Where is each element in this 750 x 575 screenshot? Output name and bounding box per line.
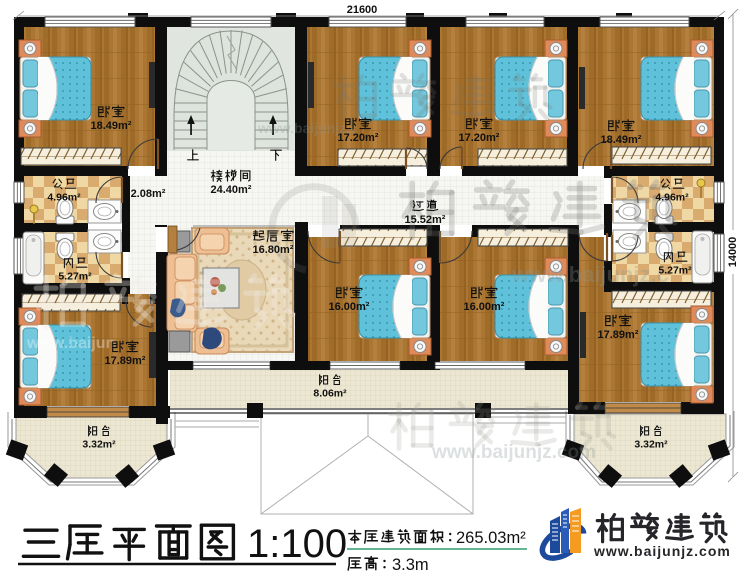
svg-text:4.96m²: 4.96m²: [655, 191, 689, 203]
svg-text:2.08m²: 2.08m²: [131, 188, 166, 200]
svg-text:16.00m²: 16.00m²: [329, 301, 370, 313]
svg-text:15.52m²: 15.52m²: [405, 214, 446, 226]
svg-text:14000: 14000: [727, 237, 739, 268]
svg-text:5.27m²: 5.27m²: [58, 270, 92, 282]
svg-text:5.27m²: 5.27m²: [658, 264, 692, 276]
svg-text:8.06m²: 8.06m²: [313, 387, 347, 399]
svg-text:17.89m²: 17.89m²: [105, 355, 146, 367]
svg-text:3.3m: 3.3m: [392, 556, 429, 574]
svg-text:18.49m²: 18.49m²: [91, 120, 132, 132]
svg-text:1:100: 1:100: [247, 522, 347, 566]
svg-text:17.20m²: 17.20m²: [338, 132, 379, 144]
svg-text:www.baijun: www.baijun: [26, 335, 115, 352]
svg-text:16.00m²: 16.00m²: [464, 301, 505, 313]
svg-text:17.20m²: 17.20m²: [459, 132, 500, 144]
svg-text:www.baijunjz.com: www.baijunjz.com: [431, 442, 596, 463]
svg-text:3.32m²: 3.32m²: [634, 438, 668, 450]
svg-text:265.03m²: 265.03m²: [456, 529, 526, 547]
svg-text:16.80m²: 16.80m²: [253, 244, 294, 256]
svg-text:4.96m²: 4.96m²: [47, 191, 81, 203]
svg-text:18.49m²: 18.49m²: [601, 134, 642, 146]
svg-text:24.40m²: 24.40m²: [211, 184, 252, 196]
svg-text:www.baijunjz.c: www.baijunjz.c: [511, 262, 669, 287]
svg-text:www.baijunjz.com: www.baijunjz.com: [593, 543, 731, 559]
svg-text:21600: 21600: [347, 4, 378, 16]
svg-text:3.32m²: 3.32m²: [82, 438, 116, 450]
svg-text:17.89m²: 17.89m²: [598, 329, 639, 341]
